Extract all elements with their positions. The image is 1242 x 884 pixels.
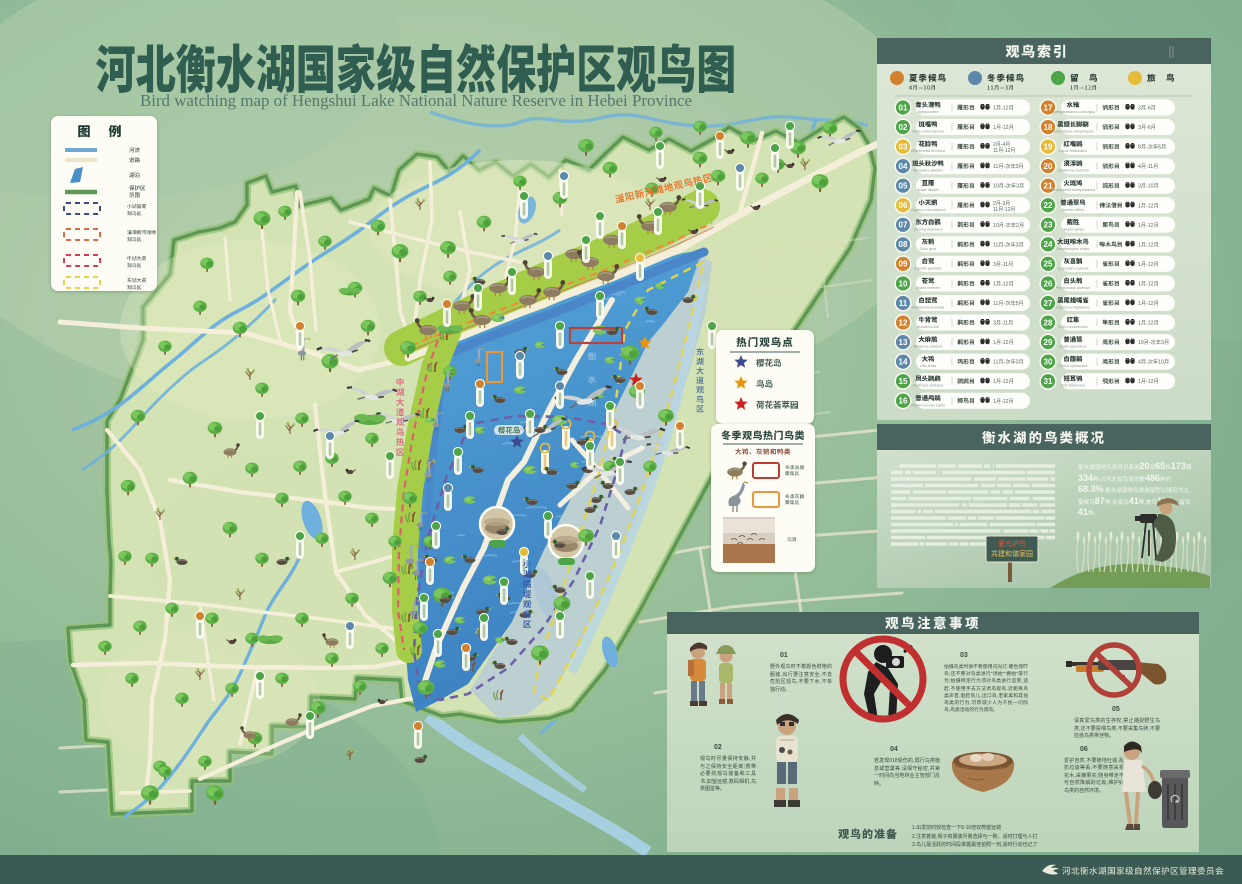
- svg-text:3月-11月: 3月-11月: [993, 261, 1013, 268]
- svg-text:1月-12月: 1月-12月: [993, 378, 1014, 385]
- svg-text:Falco tinnunculus: Falco tinnunculus: [1058, 325, 1088, 329]
- svg-text:11月-12月: 11月-12月: [993, 148, 1015, 154]
- svg-text:Platalea leucorodia: Platalea leucorodia: [912, 306, 944, 310]
- svg-text:10: 10: [899, 279, 908, 288]
- svg-text:Asio flammeus: Asio flammeus: [1060, 384, 1086, 388]
- svg-text:1月-12月: 1月-12月: [1138, 378, 1159, 385]
- svg-text:28: 28: [1044, 318, 1053, 327]
- svg-text:15: 15: [899, 377, 908, 386]
- svg-text:09: 09: [899, 260, 908, 269]
- svg-text:04: 04: [899, 162, 908, 171]
- svg-text:Anser fabalis: Anser fabalis: [916, 188, 939, 192]
- svg-text:06: 06: [899, 201, 908, 210]
- svg-text:Phalacrocorax carbo: Phalacrocorax carbo: [911, 403, 946, 407]
- svg-text:07: 07: [899, 221, 908, 230]
- svg-text:11: 11: [899, 299, 908, 308]
- svg-text:Grus grus: Grus grus: [920, 247, 937, 251]
- svg-text:Pycnonotus sinensis: Pycnonotus sinensis: [1056, 286, 1091, 290]
- svg-text:11月-12月: 11月-12月: [993, 207, 1015, 213]
- svg-text:26: 26: [1044, 279, 1053, 288]
- svg-text:Eophona migratoria: Eophona migratoria: [1056, 306, 1089, 310]
- svg-text:08: 08: [899, 240, 908, 249]
- svg-text:Chlidonias hybrida: Chlidonias hybrida: [1057, 169, 1088, 173]
- svg-text:共建和谐家园: 共建和谐家园: [991, 549, 1033, 558]
- svg-text:20: 20: [1044, 162, 1053, 171]
- svg-text:10月-次年3月: 10月-次年3月: [1138, 338, 1169, 346]
- svg-text:3月-10月: 3月-10月: [1138, 183, 1159, 190]
- svg-text:01: 01: [899, 103, 908, 112]
- svg-text:27: 27: [1044, 299, 1053, 308]
- svg-text:10月-次年2月: 10月-次年2月: [993, 221, 1024, 229]
- svg-text:10月-次年3月: 10月-次年3月: [993, 182, 1024, 190]
- svg-text:Egretta garzetta: Egretta garzetta: [914, 266, 941, 270]
- svg-text:1月-12月: 1月-12月: [993, 339, 1014, 346]
- svg-text:1月-12月: 1月-12月: [993, 105, 1014, 112]
- svg-text:Botaurus stellaris: Botaurus stellaris: [913, 345, 942, 349]
- svg-text:3月-6月: 3月-6月: [1138, 105, 1156, 112]
- svg-text:3月-6月: 3月-6月: [1138, 124, 1156, 131]
- svg-text:Podiceps cristatus: Podiceps cristatus: [913, 384, 944, 388]
- svg-text:24: 24: [1044, 240, 1053, 249]
- svg-text:1月-12月: 1月-12月: [1138, 300, 1159, 307]
- svg-text:1月-12月: 1月-12月: [1138, 261, 1159, 268]
- svg-text:1月-12月: 1月-12月: [1138, 241, 1159, 248]
- svg-text:Streptopelia tranquebarica: Streptopelia tranquebarica: [1051, 188, 1096, 192]
- svg-text:12: 12: [899, 318, 908, 327]
- svg-text:Hydrophasianus chirurgus: Hydrophasianus chirurgus: [1051, 110, 1095, 114]
- svg-text:Himantopus himantopus: Himantopus himantopus: [1053, 130, 1094, 134]
- svg-text:Buteo japonicus: Buteo japonicus: [1059, 345, 1086, 349]
- svg-text:Cygnus columbianus: Cygnus columbianus: [910, 208, 945, 212]
- svg-text:11月-次年3月: 11月-次年3月: [993, 358, 1024, 366]
- svg-text:11月-次年3月: 11月-次年3月: [993, 240, 1024, 248]
- svg-text:4月-11月: 4月-11月: [1138, 163, 1158, 170]
- svg-text:Bubulcus ibis: Bubulcus ibis: [917, 325, 939, 329]
- svg-text:Ciconia boyciana: Ciconia boyciana: [914, 227, 943, 231]
- svg-text:Anas zonorhyncha: Anas zonorhyncha: [911, 130, 943, 134]
- svg-text:Cyanopica cyanus: Cyanopica cyanus: [1057, 266, 1088, 270]
- svg-text:Upupa epops: Upupa epops: [1062, 227, 1085, 231]
- svg-text:02: 02: [899, 123, 908, 132]
- svg-text:30: 30: [1044, 357, 1053, 366]
- svg-text:Mergellus albellus: Mergellus albellus: [913, 169, 943, 173]
- svg-text:19: 19: [1044, 142, 1053, 151]
- svg-text:4月-次年10月: 4月-次年10月: [1138, 358, 1169, 366]
- svg-text:11月-次年5月: 11月-次年5月: [993, 299, 1024, 307]
- svg-text:1月-12月: 1月-12月: [1138, 320, 1159, 327]
- svg-text:29: 29: [1044, 338, 1053, 347]
- svg-text:05: 05: [899, 182, 908, 191]
- svg-text:爱鸟护鸟: 爱鸟护鸟: [998, 539, 1026, 548]
- svg-text:13: 13: [899, 338, 908, 347]
- svg-text:Aythya baeri: Aythya baeri: [916, 110, 938, 114]
- svg-text:Alcedo atthis: Alcedo atthis: [1061, 208, 1084, 212]
- svg-text:14: 14: [899, 357, 908, 366]
- svg-text:22: 22: [1044, 201, 1053, 210]
- svg-text:1月-12月: 1月-12月: [1138, 202, 1159, 209]
- svg-text:8月-次年5月: 8月-次年5月: [1138, 143, 1166, 151]
- svg-text:3月-11月: 3月-11月: [993, 320, 1013, 327]
- svg-text:23: 23: [1044, 221, 1053, 230]
- svg-text:25: 25: [1044, 260, 1053, 269]
- svg-text:16: 16: [899, 397, 908, 406]
- svg-text:03: 03: [899, 142, 908, 151]
- svg-text:Larus ridibundus: Larus ridibundus: [1059, 149, 1087, 153]
- svg-text:Circus spilonotus: Circus spilonotus: [1059, 364, 1088, 368]
- svg-text:1月-12月: 1月-12月: [1138, 222, 1159, 229]
- svg-text:11月-次年3月: 11月-次年3月: [993, 162, 1024, 170]
- svg-text:1月-12月: 1月-12月: [993, 124, 1014, 131]
- svg-text:1月-12月: 1月-12月: [993, 398, 1014, 405]
- svg-text:Otis tarda: Otis tarda: [920, 364, 936, 368]
- svg-text:Ardea cinerea: Ardea cinerea: [915, 286, 940, 290]
- svg-text:1月-12月: 1月-12月: [993, 280, 1014, 287]
- svg-text:31: 31: [1044, 377, 1053, 386]
- svg-text:1月-12月: 1月-12月: [1138, 280, 1159, 287]
- svg-text:Dendrocopos major: Dendrocopos major: [1056, 247, 1090, 251]
- svg-text:Sibirionetta formosa: Sibirionetta formosa: [911, 149, 945, 153]
